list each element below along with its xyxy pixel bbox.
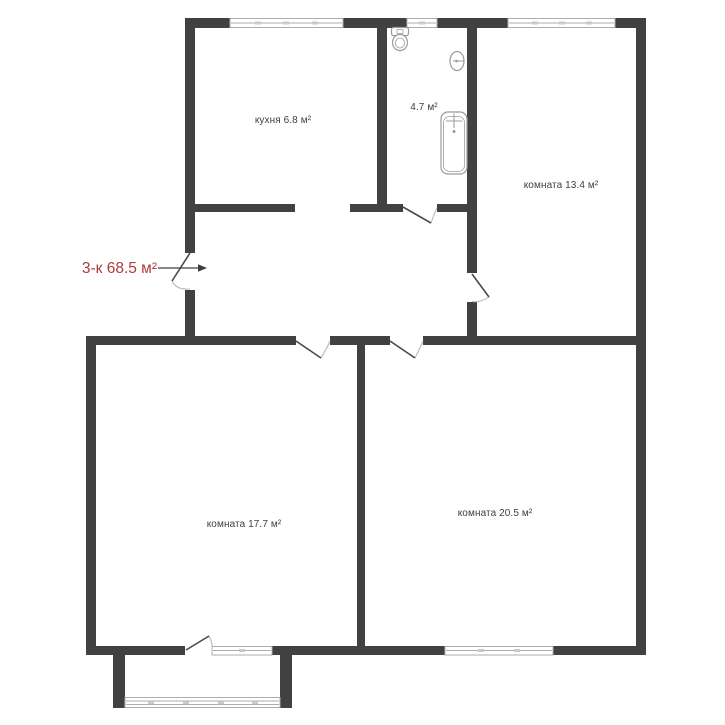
room-13-label: комната 13.4 м² (524, 180, 599, 191)
wall-balcony-left (113, 655, 125, 708)
wall-bathroom-bottom (350, 204, 403, 212)
wall-bathroom-room13 (467, 18, 477, 273)
apartment-title: 3-к 68.5 м² (82, 260, 157, 277)
bathroom-door-arc (431, 208, 437, 224)
bathtub-icon (441, 112, 467, 174)
wall-left-upper (185, 18, 195, 253)
door-arcs (172, 208, 489, 651)
wall-lower-rooms-divider (357, 345, 365, 646)
wall-kitchen-bathroom (377, 28, 387, 212)
wall-hall-lower (330, 336, 390, 345)
room-20-label: комната 20.5 м² (458, 508, 533, 519)
wall-bottom (86, 646, 185, 655)
floor-plan-drawing: 3-к 68.5 м² кухня 6.8 м² 4.7 м² комната … (0, 0, 725, 725)
kitchen-label: кухня 6.8 м² (255, 115, 312, 126)
wall-bathroom-room13 (467, 302, 477, 345)
wall-top (343, 18, 407, 28)
door-leaves (172, 207, 489, 650)
walls (86, 18, 646, 708)
window-bathroom (407, 19, 437, 28)
wall-bottom (553, 646, 646, 655)
sink-icon (450, 52, 464, 71)
wall-left-lower (86, 336, 96, 655)
room20-door-arc (415, 341, 423, 358)
room17-door-arc (321, 341, 330, 358)
floor-plan: 3-к 68.5 м² кухня 6.8 м² 4.7 м² комната … (0, 0, 725, 725)
room20-door-leaf (390, 341, 415, 358)
bathroom-door-leaf (403, 207, 431, 223)
wall-hall-lower (86, 336, 296, 345)
wall-balcony-right (280, 655, 292, 708)
bathroom-fixtures (392, 28, 468, 175)
toilet-icon (392, 28, 409, 51)
bathroom-label: 4.7 м² (410, 102, 438, 113)
room13-door-leaf (472, 274, 489, 297)
room17-door-leaf (296, 341, 321, 358)
entrance-door-leaf (172, 253, 190, 281)
room-17-label: комната 17.7 м² (207, 519, 282, 530)
window-room17 (212, 647, 272, 656)
wall-bathroom-bottom (437, 204, 467, 212)
window-room13 (508, 19, 615, 28)
wall-hall-lower (423, 336, 646, 345)
room13-door-arc (472, 297, 489, 302)
entrance-arrow-head (198, 264, 207, 272)
balcony-glazing (125, 698, 280, 708)
entrance-door-arc (172, 281, 190, 289)
window-room20 (445, 647, 553, 656)
wall-bottom (272, 646, 445, 655)
balcony-door-arc (209, 636, 212, 650)
window-kitchen (230, 19, 343, 28)
wall-kitchen-bottom (185, 204, 295, 212)
balcony-door-leaf (186, 636, 209, 650)
windows (125, 19, 615, 708)
